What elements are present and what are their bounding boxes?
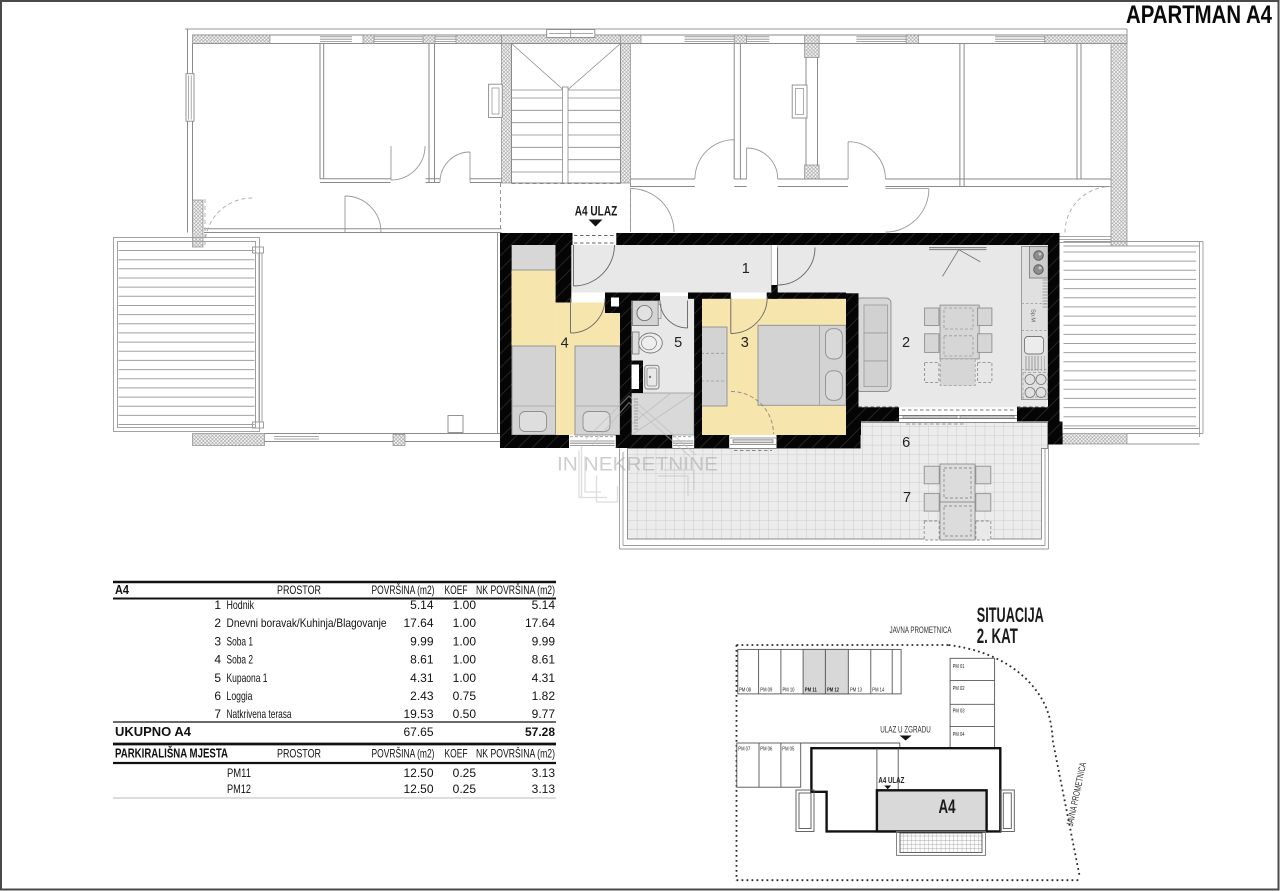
svg-text:8.61: 8.61	[410, 653, 434, 667]
svg-text:1: 1	[742, 261, 750, 277]
svg-text:4.31: 4.31	[410, 671, 434, 685]
svg-text:12.50: 12.50	[403, 766, 433, 780]
svg-text:3.13: 3.13	[532, 782, 556, 796]
svg-text:9.99: 9.99	[410, 634, 434, 648]
svg-text:5: 5	[214, 671, 221, 685]
svg-text:APARTMAN A4: APARTMAN A4	[1126, 1, 1272, 29]
svg-text:5: 5	[674, 335, 682, 351]
svg-text:17.64: 17.64	[403, 616, 433, 630]
svg-text:4.31: 4.31	[532, 671, 556, 685]
svg-text:0.25: 0.25	[453, 782, 477, 796]
svg-text:PM 05: PM 05	[782, 747, 794, 753]
svg-text:PM 02: PM 02	[953, 686, 965, 692]
svg-text:PARKIRALIŠNA MJESTA: PARKIRALIŠNA MJESTA	[115, 746, 228, 761]
svg-text:3: 3	[214, 634, 221, 648]
svg-text:6: 6	[902, 435, 910, 451]
svg-text:3: 3	[741, 335, 749, 351]
svg-text:0.25: 0.25	[453, 766, 477, 780]
svg-text:7: 7	[903, 490, 911, 506]
svg-text:17.64: 17.64	[525, 616, 555, 630]
svg-text:PM 03: PM 03	[953, 709, 965, 715]
svg-text:1.00: 1.00	[453, 671, 477, 685]
svg-text:67.65: 67.65	[403, 725, 433, 739]
svg-text:Soba 1: Soba 1	[227, 634, 254, 648]
svg-text:3.13: 3.13	[532, 766, 556, 780]
svg-text:NK POVRŠINA (m2): NK POVRŠINA (m2)	[476, 582, 555, 597]
svg-text:A4 ULAZ: A4 ULAZ	[575, 203, 618, 219]
svg-text:Sp.M: Sp.M	[1030, 309, 1036, 322]
svg-text:KOEF: KOEF	[445, 747, 468, 761]
svg-text:PM 09: PM 09	[760, 688, 772, 694]
svg-text:Dnevni boravak/Kuhinja/Blagova: Dnevni boravak/Kuhinja/Blagovanje	[227, 616, 387, 630]
svg-text:NK POVRŠINA (m2): NK POVRŠINA (m2)	[476, 746, 555, 761]
svg-text:1.00: 1.00	[453, 653, 477, 667]
svg-text:9.99: 9.99	[532, 634, 556, 648]
svg-text:Kupaona 1: Kupaona 1	[227, 671, 268, 685]
svg-text:SITUACIJA: SITUACIJA	[977, 604, 1044, 627]
svg-text:57.28: 57.28	[525, 725, 555, 739]
svg-text:6: 6	[214, 689, 221, 703]
svg-text:4: 4	[214, 653, 221, 667]
svg-text:5.14: 5.14	[410, 598, 434, 612]
svg-text:1.00: 1.00	[453, 634, 477, 648]
svg-text:Soba 2: Soba 2	[227, 653, 254, 667]
svg-text:POVRŠINA (m2): POVRŠINA (m2)	[372, 746, 435, 761]
svg-text:PM 06: PM 06	[760, 747, 772, 753]
svg-text:PM 07: PM 07	[738, 747, 750, 753]
svg-text:PM 11: PM 11	[805, 688, 818, 694]
svg-text:A4: A4	[939, 797, 956, 818]
svg-text:0.75: 0.75	[453, 689, 477, 703]
svg-text:2.43: 2.43	[410, 689, 434, 703]
svg-text:19.53: 19.53	[403, 707, 433, 721]
svg-text:KOEF: KOEF	[445, 583, 468, 597]
svg-text:JAVNA PROMETNICA: JAVNA PROMETNICA	[890, 625, 952, 636]
svg-text:PM12: PM12	[227, 782, 251, 796]
svg-text:ULAZ U ZGRADU: ULAZ U ZGRADU	[880, 725, 931, 736]
svg-text:5.14: 5.14	[532, 598, 556, 612]
svg-text:PM 01: PM 01	[953, 664, 965, 670]
svg-text:1.82: 1.82	[532, 689, 556, 703]
svg-text:0.50: 0.50	[453, 707, 477, 721]
svg-text:Loggia: Loggia	[227, 689, 253, 703]
svg-text:A4 ULAZ: A4 ULAZ	[878, 775, 904, 785]
svg-text:1.00: 1.00	[453, 598, 477, 612]
svg-text:1: 1	[214, 598, 221, 612]
svg-text:PM 12: PM 12	[827, 688, 839, 694]
svg-text:8.61: 8.61	[532, 653, 556, 667]
svg-text:PM 04: PM 04	[953, 732, 966, 738]
svg-text:Hodnik: Hodnik	[227, 598, 255, 612]
svg-text:PM 13: PM 13	[850, 688, 862, 694]
svg-text:4: 4	[561, 336, 569, 352]
svg-text:PROSTOR: PROSTOR	[277, 747, 321, 761]
svg-text:12.50: 12.50	[403, 782, 433, 796]
svg-text:7: 7	[214, 707, 221, 721]
svg-text:A4: A4	[115, 582, 130, 597]
svg-text:PM 14: PM 14	[872, 688, 885, 694]
svg-text:PROSTOR: PROSTOR	[277, 583, 321, 597]
svg-text:1.00: 1.00	[453, 616, 477, 630]
svg-text:9.77: 9.77	[532, 707, 556, 721]
svg-text:PM 10: PM 10	[783, 688, 795, 694]
svg-text:2: 2	[902, 335, 910, 351]
svg-text:POVRŠINA (m2): POVRŠINA (m2)	[372, 582, 435, 597]
svg-text:PM 08: PM 08	[739, 688, 751, 694]
svg-text:2: 2	[214, 616, 221, 630]
svg-text:Natkrivena terasa: Natkrivena terasa	[227, 707, 292, 721]
svg-text:2. KAT: 2. KAT	[977, 625, 1018, 648]
svg-text:UKUPNO A4: UKUPNO A4	[115, 725, 191, 739]
svg-text:PM11: PM11	[227, 766, 251, 780]
